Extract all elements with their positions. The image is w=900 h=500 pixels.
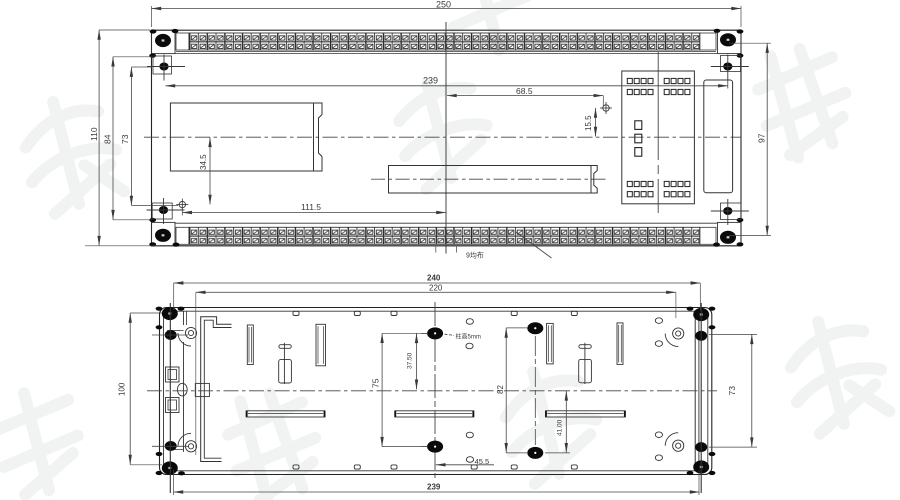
svg-text:84: 84 — [103, 134, 113, 144]
svg-text:110: 110 — [89, 127, 99, 141]
svg-text:15.5: 15.5 — [584, 115, 593, 131]
svg-text:250: 250 — [436, 0, 451, 10]
svg-text:239: 239 — [427, 483, 441, 492]
svg-text:239: 239 — [423, 76, 438, 86]
svg-text:220: 220 — [429, 284, 443, 293]
svg-text:41.00: 41.00 — [557, 419, 564, 436]
svg-text:111.5: 111.5 — [301, 202, 321, 212]
svg-text:34.5: 34.5 — [199, 154, 208, 170]
svg-text:240: 240 — [427, 274, 441, 283]
svg-text:73: 73 — [727, 386, 737, 396]
svg-text:68.5: 68.5 — [516, 86, 533, 96]
svg-text:73: 73 — [120, 134, 130, 144]
svg-text:82: 82 — [496, 385, 505, 394]
svg-text:97: 97 — [757, 133, 767, 143]
svg-text:37.50: 37.50 — [407, 352, 414, 369]
svg-text:45.5: 45.5 — [475, 457, 490, 466]
svg-text:75: 75 — [371, 378, 381, 388]
svg-text:100: 100 — [118, 382, 127, 396]
svg-text:9均布: 9均布 — [466, 251, 484, 260]
svg-text:柱高5mm: 柱高5mm — [456, 333, 481, 341]
